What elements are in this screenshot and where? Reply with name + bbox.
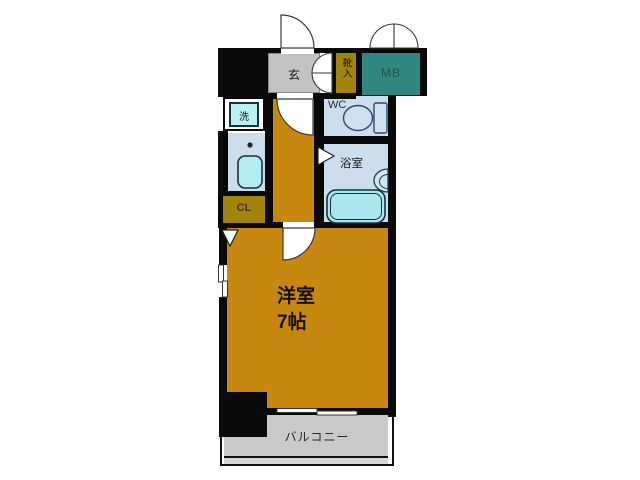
- main-room-name: 洋室: [277, 284, 315, 310]
- toilet-bowl: [344, 106, 373, 131]
- shoe-box-label: 靴入: [341, 58, 351, 79]
- washer-label: 洗: [229, 108, 259, 123]
- main-room-door-swing: [283, 228, 315, 260]
- room-opening: [283, 222, 314, 228]
- wc-label: WC: [328, 99, 346, 111]
- entrance-door-swing: [281, 15, 314, 48]
- balcony-label: バルコニー: [267, 428, 367, 445]
- balcony-slider-pane-2: [317, 411, 357, 415]
- bathroom-label: 浴室: [340, 155, 363, 171]
- closet-label: CL: [223, 202, 265, 214]
- kitchen-sink: [238, 156, 262, 188]
- stove-burner: [247, 142, 252, 147]
- balcony-slider-pane-1: [277, 409, 317, 413]
- hallway-door-swing: [277, 99, 313, 135]
- meter-box-door-left: [370, 24, 394, 48]
- main-room-size: 7帖: [277, 310, 315, 336]
- hall-opening: [277, 93, 313, 99]
- left-window-pane-2: [223, 281, 228, 297]
- main-room-label: 洋室 7帖: [277, 284, 315, 336]
- meter-box-door-right: [394, 24, 418, 48]
- toilet-tank: [374, 103, 387, 133]
- bathroom-folding-door: [318, 147, 334, 165]
- genkan-label: 玄: [268, 66, 320, 83]
- floor-plan: 玄 靴入 MB 洗 WC 浴室 CL 洋室 7帖 バルコニー: [0, 0, 640, 480]
- symbols-layer: [0, 0, 640, 480]
- meter-box-label: MB: [362, 66, 420, 80]
- left-window-pane-1: [219, 265, 224, 282]
- closet-folding-door: [222, 230, 238, 246]
- bathtub: [327, 190, 385, 223]
